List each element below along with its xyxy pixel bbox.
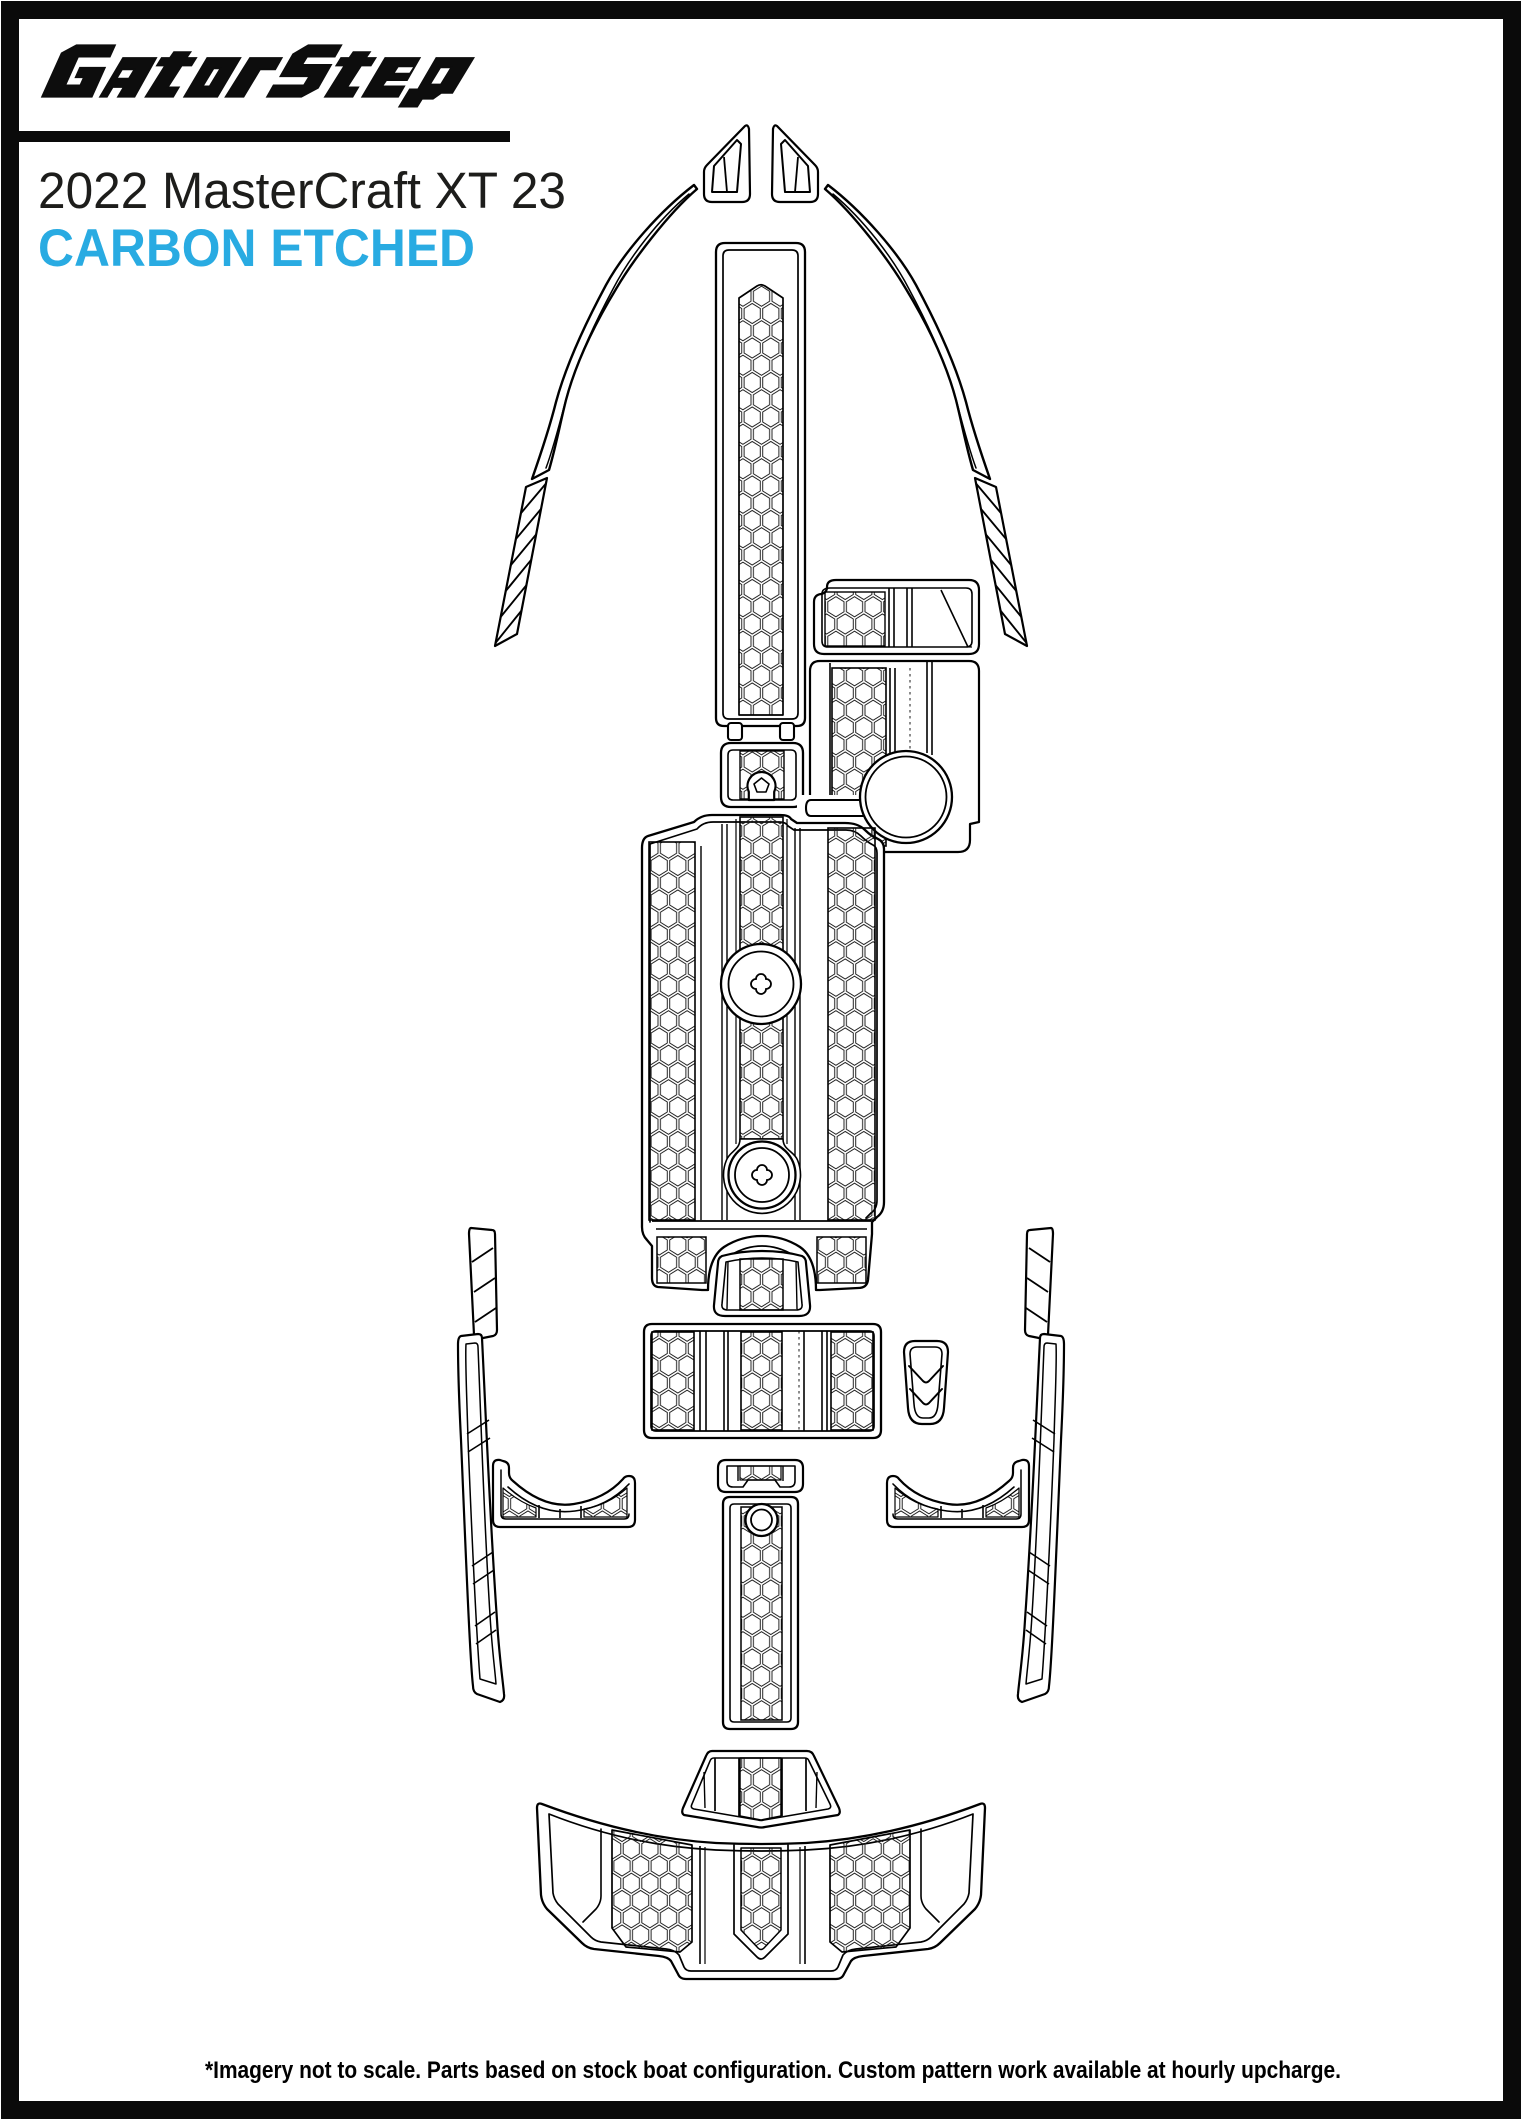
svg-text:*Imagery not to scale. Parts b: *Imagery not to scale. Parts based on st… bbox=[205, 2057, 1341, 2084]
svg-text:2022 MasterCraft XT 23: 2022 MasterCraft XT 23 bbox=[38, 162, 566, 219]
svg-text:CARBON ETCHED: CARBON ETCHED bbox=[38, 219, 475, 278]
